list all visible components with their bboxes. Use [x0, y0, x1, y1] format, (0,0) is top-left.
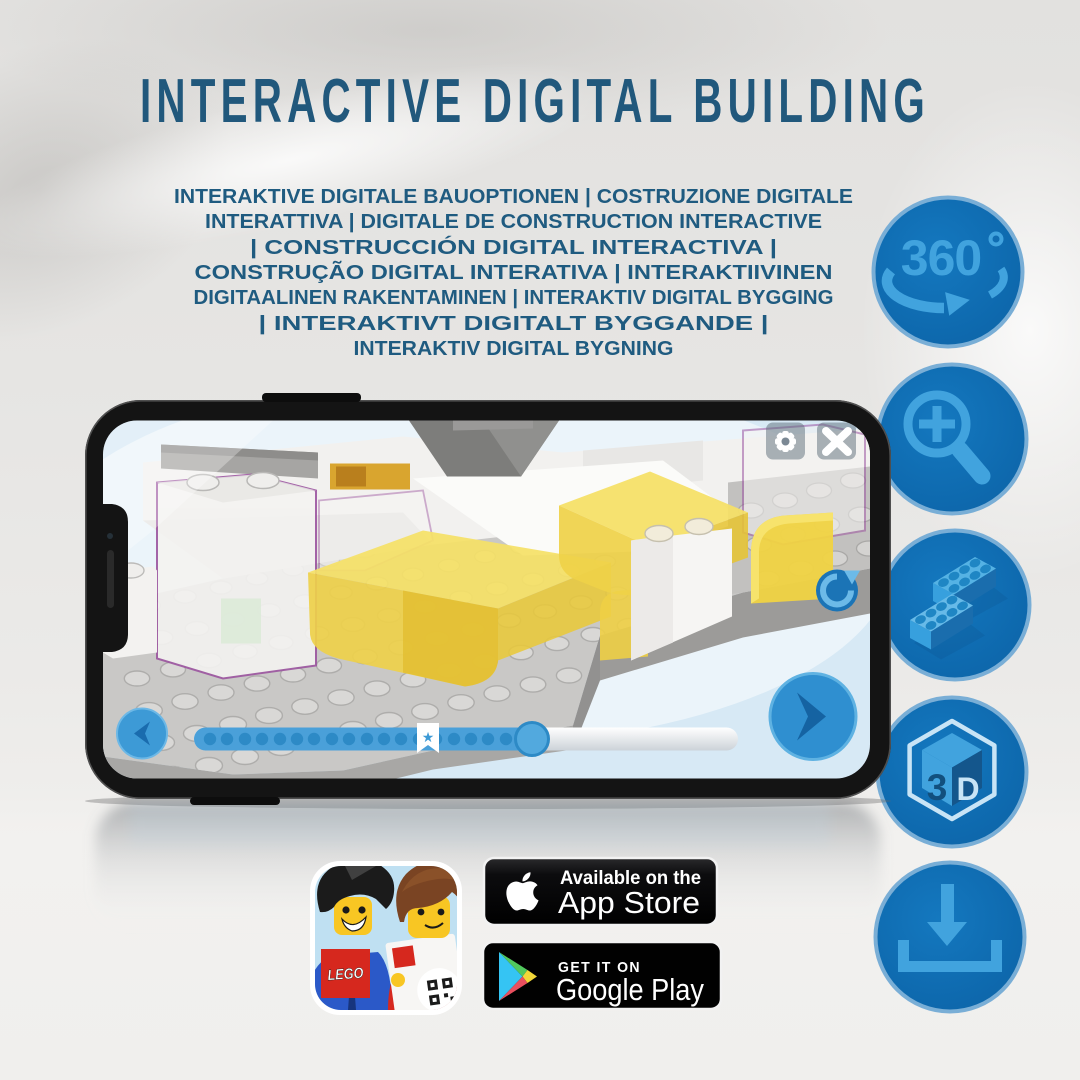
svg-text:INTERAKTIVE DIGITALE BAUOPTION: INTERAKTIVE DIGITALE BAUOPTIONEN | COSTR…: [174, 186, 853, 208]
svg-text:CONSTRUÇÃO DIGITAL INTERATIVA: CONSTRUÇÃO DIGITAL INTERATIVA | INTERAKT…: [195, 261, 833, 284]
svg-text:360: 360: [901, 230, 981, 286]
svg-text:App Store: App Store: [558, 885, 700, 920]
svg-text:INTERATTIVA | DIGITALE DE CONS: INTERATTIVA | DIGITALE DE CONSTRUCTION I…: [205, 211, 822, 233]
svg-text:INTERAKTIV DIGITAL BYGNING: INTERAKTIV DIGITAL BYGNING: [354, 338, 674, 360]
svg-text:| CONSTRUCCIÓN DIGITAL INTERAC: | CONSTRUCCIÓN DIGITAL INTERACTIVA |: [250, 235, 777, 259]
svg-text:Google Play: Google Play: [556, 972, 704, 1007]
svg-text:INTERACTIVE DIGITAL BUILDING: INTERACTIVE DIGITAL BUILDING: [140, 67, 930, 136]
svg-text:3: 3: [927, 767, 948, 808]
svg-text:D: D: [956, 771, 979, 807]
svg-text:LEGO: LEGO: [327, 965, 364, 984]
svg-text:| INTERAKTIVT DIGITALT BYGGAND: | INTERAKTIVT DIGITALT BYGGANDE |: [259, 313, 769, 335]
svg-text:★: ★: [422, 729, 435, 745]
svg-text:DIGITAALINEN RAKENTAMINEN | IN: DIGITAALINEN RAKENTAMINEN | INTERAKTIV D…: [194, 287, 834, 309]
